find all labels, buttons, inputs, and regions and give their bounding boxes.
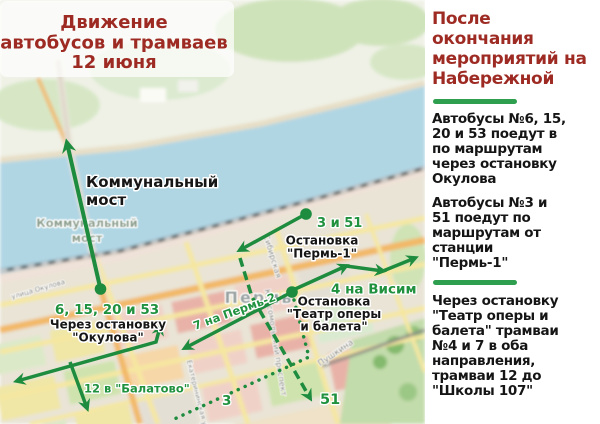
bridge-label-line1: Коммунальный: [86, 173, 218, 191]
panel-title: Послеокончаниямероприятий наНабережной: [432, 9, 596, 89]
stop-dot-theatre: [286, 286, 298, 298]
panel-paragraph-trams: Через остановку"Театр оперы ибалета" тра…: [432, 294, 596, 399]
perm1-route-numbers: 3 и 51: [317, 216, 362, 231]
info-panel: Послеокончаниямероприятий наНабережной А…: [425, 0, 600, 424]
okulova-route-numbers: 6, 15, 20 и 53: [55, 302, 159, 318]
map-canvas: Коммунальный мост Пермь Сибирская Комсом…: [0, 0, 425, 424]
perm1-stop-line1: Остановка: [286, 234, 359, 248]
okulova-stop-line2: "Окулова": [72, 331, 143, 345]
map-title-line3: 12 июня: [71, 52, 156, 73]
map-title-line1: Движение: [60, 12, 167, 33]
divider-bottom: [433, 280, 517, 285]
perm1-stop-line2: "Пермь-1": [287, 247, 357, 261]
map-svg: Коммунальный мост Пермь Сибирская Комсом…: [0, 0, 425, 424]
route51-number: 51: [320, 392, 340, 408]
panel-paragraph-buses-3-51: Автобусы №3 и51 поедут помаршрутам отста…: [432, 196, 596, 271]
route3-number: 3: [222, 393, 231, 409]
stop-dot-perm1: [300, 208, 312, 220]
divider-top: [433, 99, 517, 104]
map-title-line2: автобусов и трамваев: [0, 33, 228, 54]
transit-infographic: Коммунальный мост Пермь Сибирская Комсом…: [0, 0, 600, 424]
panel-paragraph-buses-6-15-20-53: Автобусы №6, 15,20 и 53 поедут впо маршр…: [432, 112, 596, 187]
balatovo-route-label: 12 в "Балатово": [84, 382, 190, 396]
map-title-card: Движение автобусов и трамваев 12 июня: [0, 1, 234, 77]
stop-dot-okulova: [95, 283, 107, 295]
okulova-stop-line1: Через остановку: [50, 318, 166, 332]
bridge-label-line2: мост: [86, 191, 126, 209]
theatre-stop-line3: и балета": [300, 320, 367, 334]
